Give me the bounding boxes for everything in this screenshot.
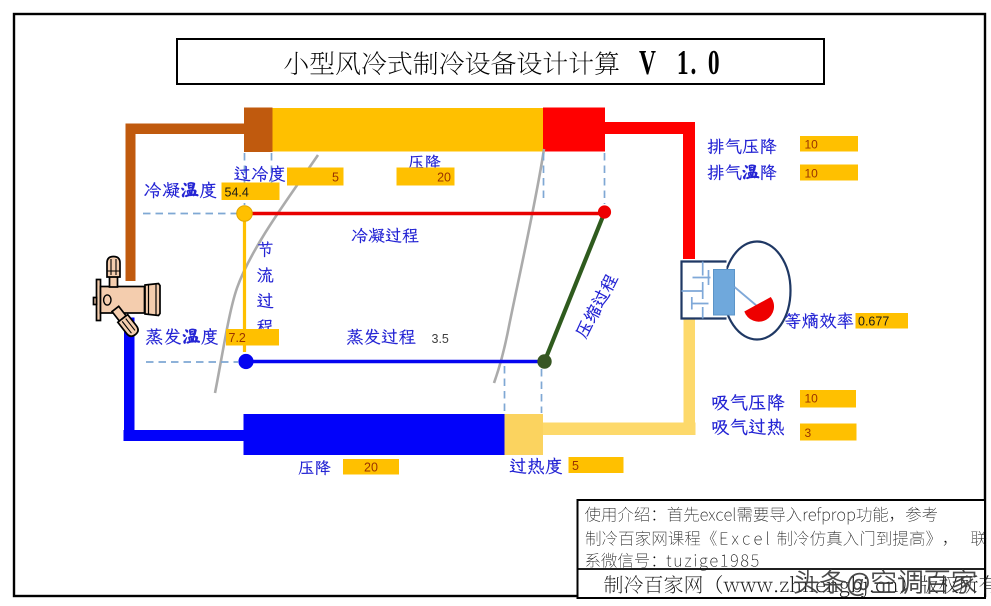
svg-text:10: 10 — [805, 138, 819, 152]
svg-text:7.2: 7.2 — [229, 331, 246, 345]
svg-text:3: 3 — [805, 426, 812, 440]
svg-text:5: 5 — [572, 459, 579, 473]
svg-text:V1.0: V1.0 — [639, 45, 720, 82]
svg-text:10: 10 — [805, 167, 819, 181]
svg-text:0.677: 0.677 — [858, 315, 889, 329]
svg-text:10: 10 — [805, 392, 819, 406]
svg-text:3.5: 3.5 — [432, 332, 449, 346]
svg-text:5: 5 — [332, 171, 339, 185]
svg-text:54.4: 54.4 — [225, 186, 249, 200]
svg-text:20: 20 — [437, 171, 451, 185]
svg-text:20: 20 — [364, 461, 378, 475]
